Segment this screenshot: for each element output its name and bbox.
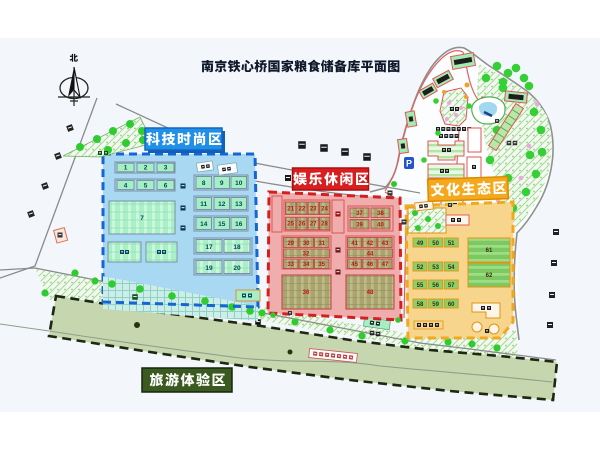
svg-text:55: 55	[417, 283, 424, 289]
svg-text:25: 25	[287, 222, 294, 228]
svg-text:57: 57	[448, 283, 455, 289]
svg-text:37: 37	[356, 211, 363, 217]
svg-text:49: 49	[417, 241, 424, 247]
svg-text:14: 14	[200, 221, 208, 228]
svg-text:18: 18	[233, 244, 241, 251]
svg-text:1: 1	[124, 165, 128, 172]
svg-text:36: 36	[303, 290, 310, 296]
svg-text:11: 11	[200, 201, 207, 208]
svg-text:43: 43	[382, 241, 389, 247]
svg-text:31: 31	[318, 241, 325, 247]
svg-text:2: 2	[144, 165, 148, 172]
svg-text:P: P	[406, 159, 412, 169]
svg-text:54: 54	[448, 265, 455, 271]
svg-text:28: 28	[321, 222, 328, 228]
svg-text:10: 10	[235, 180, 243, 187]
svg-text:32: 32	[303, 252, 310, 258]
svg-text:21: 21	[287, 207, 294, 213]
svg-text:38: 38	[377, 211, 384, 217]
svg-text:26: 26	[299, 222, 306, 228]
svg-text:58: 58	[417, 302, 424, 308]
svg-text:51: 51	[448, 241, 455, 247]
svg-text:3: 3	[164, 165, 168, 172]
svg-text:44: 44	[367, 252, 374, 258]
svg-text:48: 48	[367, 290, 374, 296]
svg-text:24: 24	[321, 207, 328, 213]
svg-text:40: 40	[377, 223, 384, 229]
svg-text:8: 8	[202, 180, 206, 187]
svg-text:9: 9	[220, 180, 224, 187]
svg-text:39: 39	[356, 223, 363, 229]
svg-text:35: 35	[318, 262, 325, 268]
svg-text:12: 12	[218, 201, 226, 208]
svg-text:17: 17	[205, 244, 213, 251]
svg-text:15: 15	[218, 221, 226, 228]
svg-text:5: 5	[144, 183, 148, 190]
svg-text:59: 59	[432, 302, 439, 308]
svg-text:46: 46	[366, 262, 373, 268]
svg-text:23: 23	[310, 207, 317, 213]
svg-text:13: 13	[235, 201, 243, 208]
svg-text:27: 27	[310, 222, 317, 228]
svg-text:6: 6	[164, 183, 168, 190]
svg-text:41: 41	[351, 241, 358, 247]
svg-text:19: 19	[205, 265, 213, 272]
svg-text:52: 52	[417, 265, 424, 271]
svg-text:56: 56	[432, 283, 439, 289]
svg-text:60: 60	[448, 302, 455, 308]
svg-text:29: 29	[287, 241, 294, 247]
svg-text:16: 16	[235, 221, 243, 228]
svg-text:45: 45	[351, 262, 358, 268]
svg-text:42: 42	[366, 241, 373, 247]
svg-text:61: 61	[486, 248, 493, 254]
svg-text:50: 50	[432, 241, 439, 247]
svg-text:53: 53	[432, 265, 439, 271]
svg-text:20: 20	[233, 265, 241, 272]
svg-text:22: 22	[299, 207, 306, 213]
svg-text:62: 62	[486, 273, 493, 279]
svg-text:33: 33	[287, 262, 294, 268]
svg-text:30: 30	[303, 241, 310, 247]
svg-text:4: 4	[124, 183, 128, 190]
svg-text:34: 34	[303, 262, 310, 268]
svg-text:47: 47	[382, 262, 389, 268]
svg-text:7: 7	[140, 215, 144, 222]
